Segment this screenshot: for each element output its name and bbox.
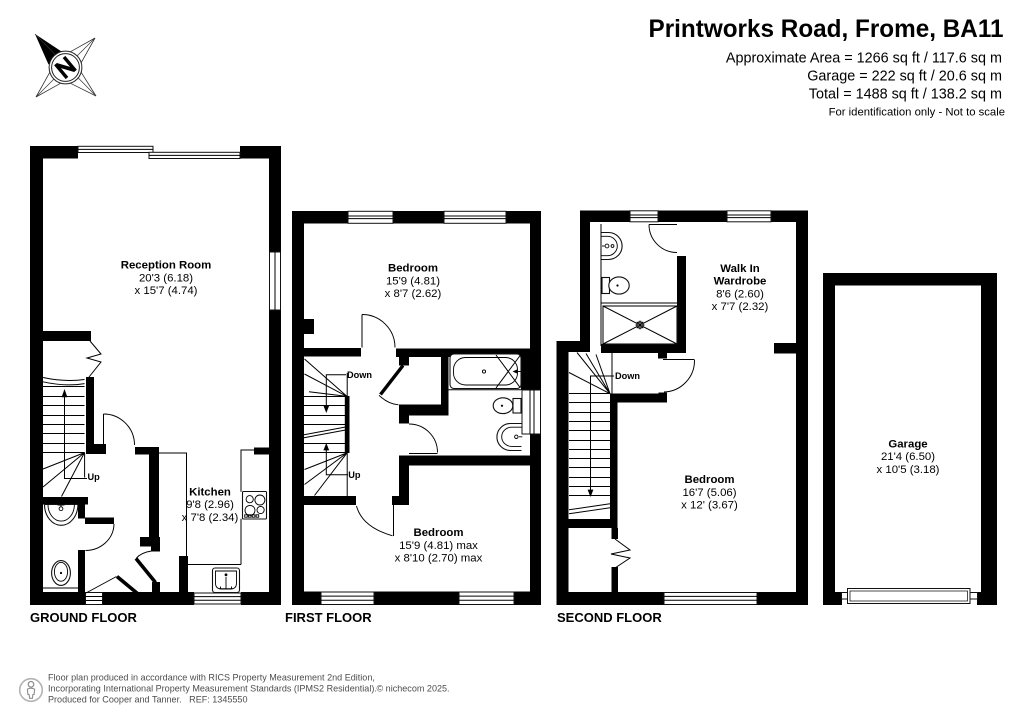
svg-text:Bedroom: Bedroom: [685, 474, 735, 486]
svg-text:Up: Up: [88, 472, 101, 482]
svg-text:Garage: Garage: [888, 438, 927, 450]
svg-text:FIRST FLOOR: FIRST FLOOR: [285, 610, 372, 625]
svg-text:x 10'5 (3.18): x 10'5 (3.18): [877, 464, 940, 476]
svg-text:x 7'7 (2.32): x 7'7 (2.32): [712, 301, 769, 313]
svg-text:15'9 (4.81) max: 15'9 (4.81) max: [399, 540, 478, 552]
svg-text:Garage = 222 sq ft / 20.6 sq m: Garage = 222 sq ft / 20.6 sq m: [807, 69, 1002, 85]
svg-text:Up: Up: [348, 470, 361, 480]
svg-text:x 8'10 (2.70) max: x 8'10 (2.70) max: [395, 553, 483, 565]
svg-text:Reception Room: Reception Room: [121, 260, 212, 272]
svg-text:8'6 (2.60): 8'6 (2.60): [716, 288, 764, 300]
svg-text:Walk In: Walk In: [720, 263, 759, 275]
svg-text:16'7 (5.06): 16'7 (5.06): [682, 487, 736, 499]
svg-text:Total = 1488 sq ft / 138.2 sq: Total = 1488 sq ft / 138.2 sq m: [809, 87, 1002, 103]
svg-text:Wardrobe: Wardrobe: [714, 276, 767, 288]
svg-text:Floor plan produced in accorda: Floor plan produced in accordance with R…: [48, 673, 375, 683]
svg-text:Approximate Area = 1266 sq ft: Approximate Area = 1266 sq ft / 117.6 sq…: [726, 51, 1002, 67]
svg-text:Down: Down: [615, 371, 640, 381]
svg-text:x 12' (3.67): x 12' (3.67): [681, 500, 738, 512]
svg-text:© nichecom 2025.: © nichecom 2025.: [377, 684, 450, 694]
svg-text:x 15'7 (4.74): x 15'7 (4.74): [135, 285, 198, 297]
svg-text:SECOND FLOOR: SECOND FLOOR: [557, 610, 662, 625]
svg-text:Down: Down: [347, 370, 372, 380]
svg-text:21'4 (6.50): 21'4 (6.50): [881, 451, 935, 463]
svg-text:Bedroom: Bedroom: [414, 527, 464, 539]
svg-text:For identification only - Not: For identification only - Not to scale: [829, 107, 1005, 119]
svg-text:Incorporating International Pr: Incorporating International Property Mea…: [48, 684, 377, 694]
svg-text:20'3 (6.18): 20'3 (6.18): [139, 272, 193, 284]
svg-text:Bedroom: Bedroom: [388, 263, 438, 275]
svg-text:x 7'8 (2.34): x 7'8 (2.34): [182, 512, 239, 524]
svg-text:15'9 (4.81): 15'9 (4.81): [386, 275, 440, 287]
svg-text:Produced for Cooper and Tanner: Produced for Cooper and Tanner. REF: 134…: [48, 695, 248, 705]
svg-text:Kitchen: Kitchen: [189, 486, 231, 498]
svg-text:9'8 (2.96): 9'8 (2.96): [186, 499, 234, 511]
svg-text:x 8'7 (2.62): x 8'7 (2.62): [385, 288, 442, 300]
svg-text:Printworks Road, Frome, BA11: Printworks Road, Frome, BA11: [649, 15, 1004, 43]
svg-text:GROUND FLOOR: GROUND FLOOR: [30, 610, 137, 625]
